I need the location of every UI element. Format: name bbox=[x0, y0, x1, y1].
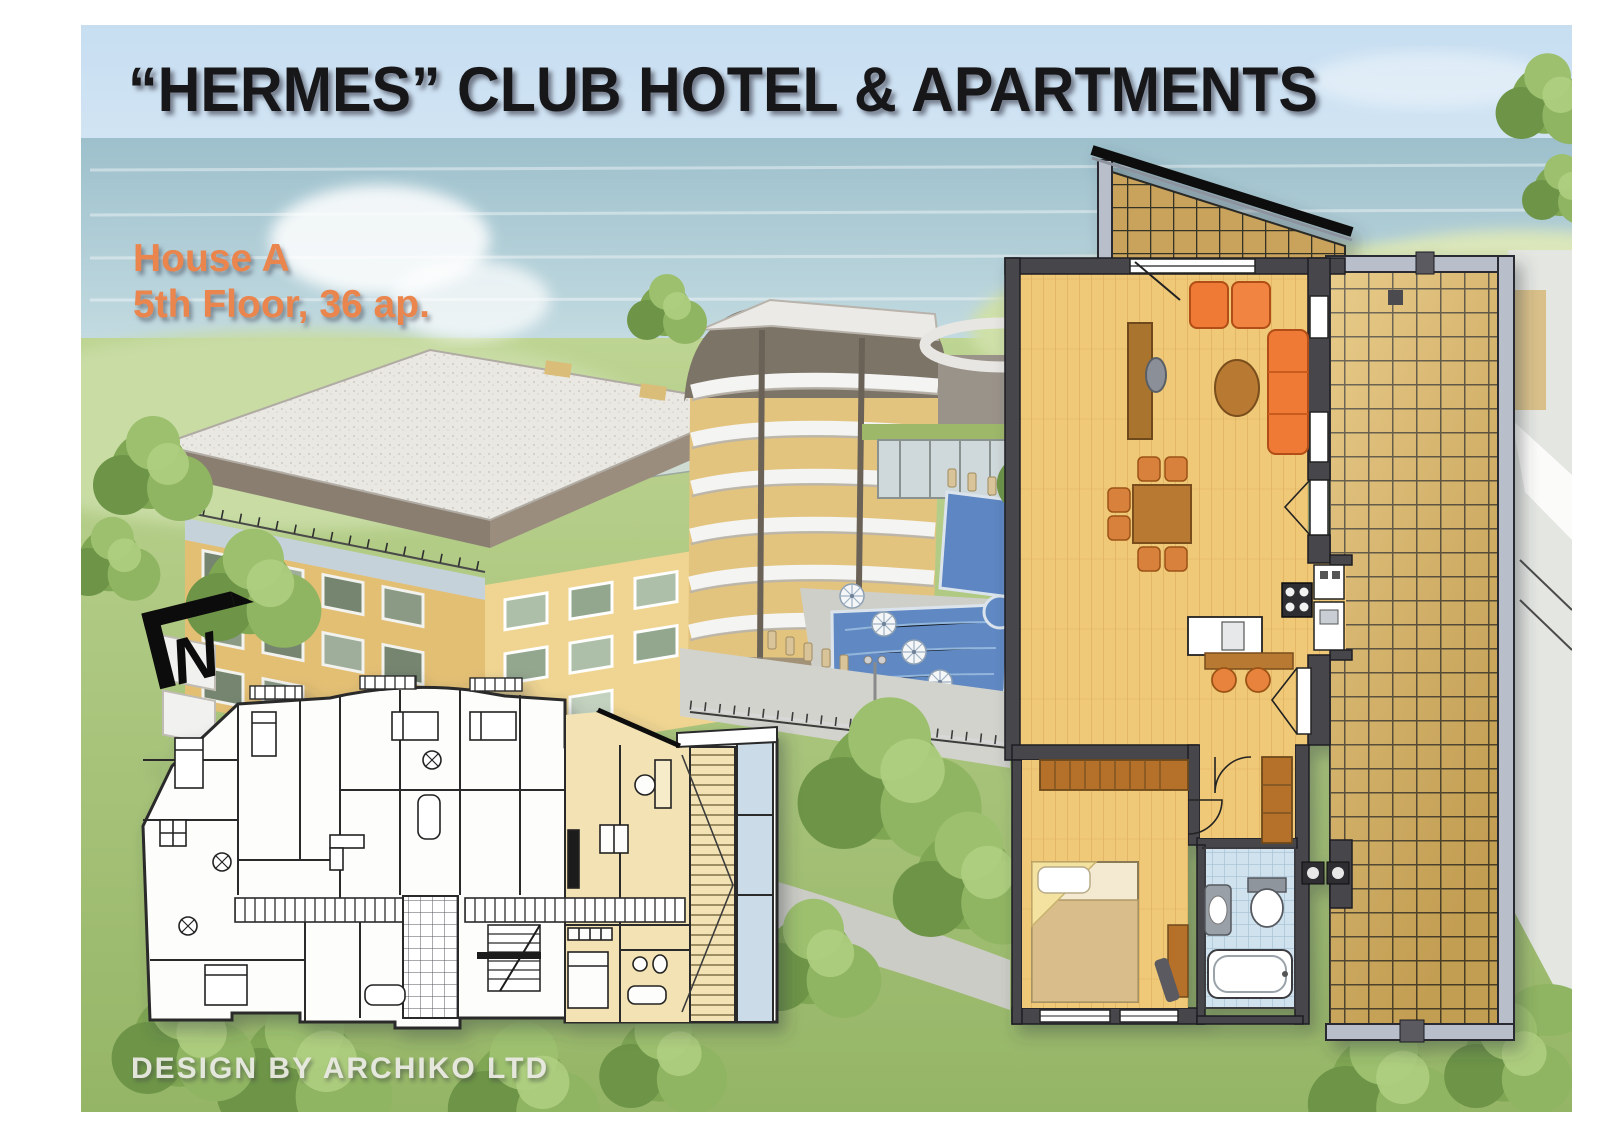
floor-info: 5th Floor, 36 ap. bbox=[133, 282, 430, 328]
apartment-detail-plan bbox=[1005, 150, 1514, 1042]
house-name: House A bbox=[133, 236, 430, 282]
wardrobe bbox=[1040, 760, 1188, 790]
hall-cabinet bbox=[1262, 757, 1292, 843]
unit-terrace-glass bbox=[737, 742, 773, 1022]
bed bbox=[1032, 862, 1138, 1002]
design-credit: DESIGN BY ARCHIKO LTD bbox=[131, 1052, 549, 1086]
main-terrace bbox=[1326, 252, 1514, 1042]
scene-rendering: N bbox=[0, 0, 1600, 1131]
corridor-hatch-right bbox=[465, 898, 685, 922]
elevator-lobby bbox=[403, 896, 458, 1018]
corridor-hatch-left bbox=[235, 898, 403, 922]
page-title: “HERMES” CLUB HOTEL & APARTMENTS bbox=[128, 54, 1318, 126]
street-background bbox=[1508, 250, 1588, 1036]
house-annotation: House A 5th Floor, 36 ap. bbox=[133, 236, 430, 328]
brochure-page: N bbox=[0, 0, 1600, 1131]
unit-terrace-hatch bbox=[690, 747, 735, 1022]
bathroom bbox=[1205, 848, 1295, 1008]
pool-upper bbox=[940, 492, 1010, 597]
